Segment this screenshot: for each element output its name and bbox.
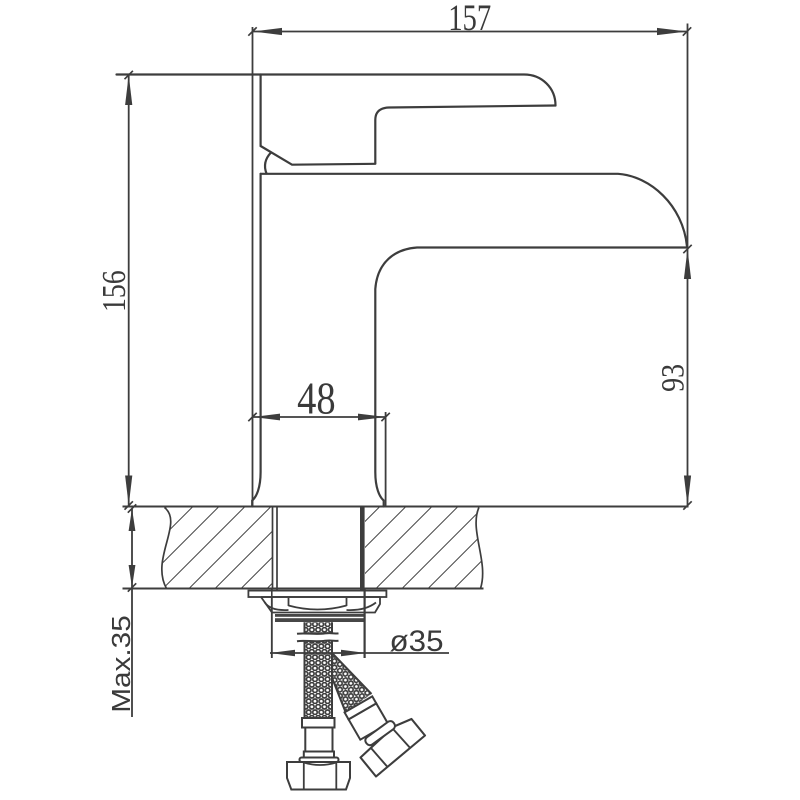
svg-text:93: 93 [655, 364, 691, 392]
svg-text:157: 157 [448, 0, 491, 39]
svg-text:156: 156 [96, 270, 133, 312]
svg-text:48: 48 [297, 374, 336, 424]
svg-text:Max.35: Max.35 [108, 615, 136, 713]
